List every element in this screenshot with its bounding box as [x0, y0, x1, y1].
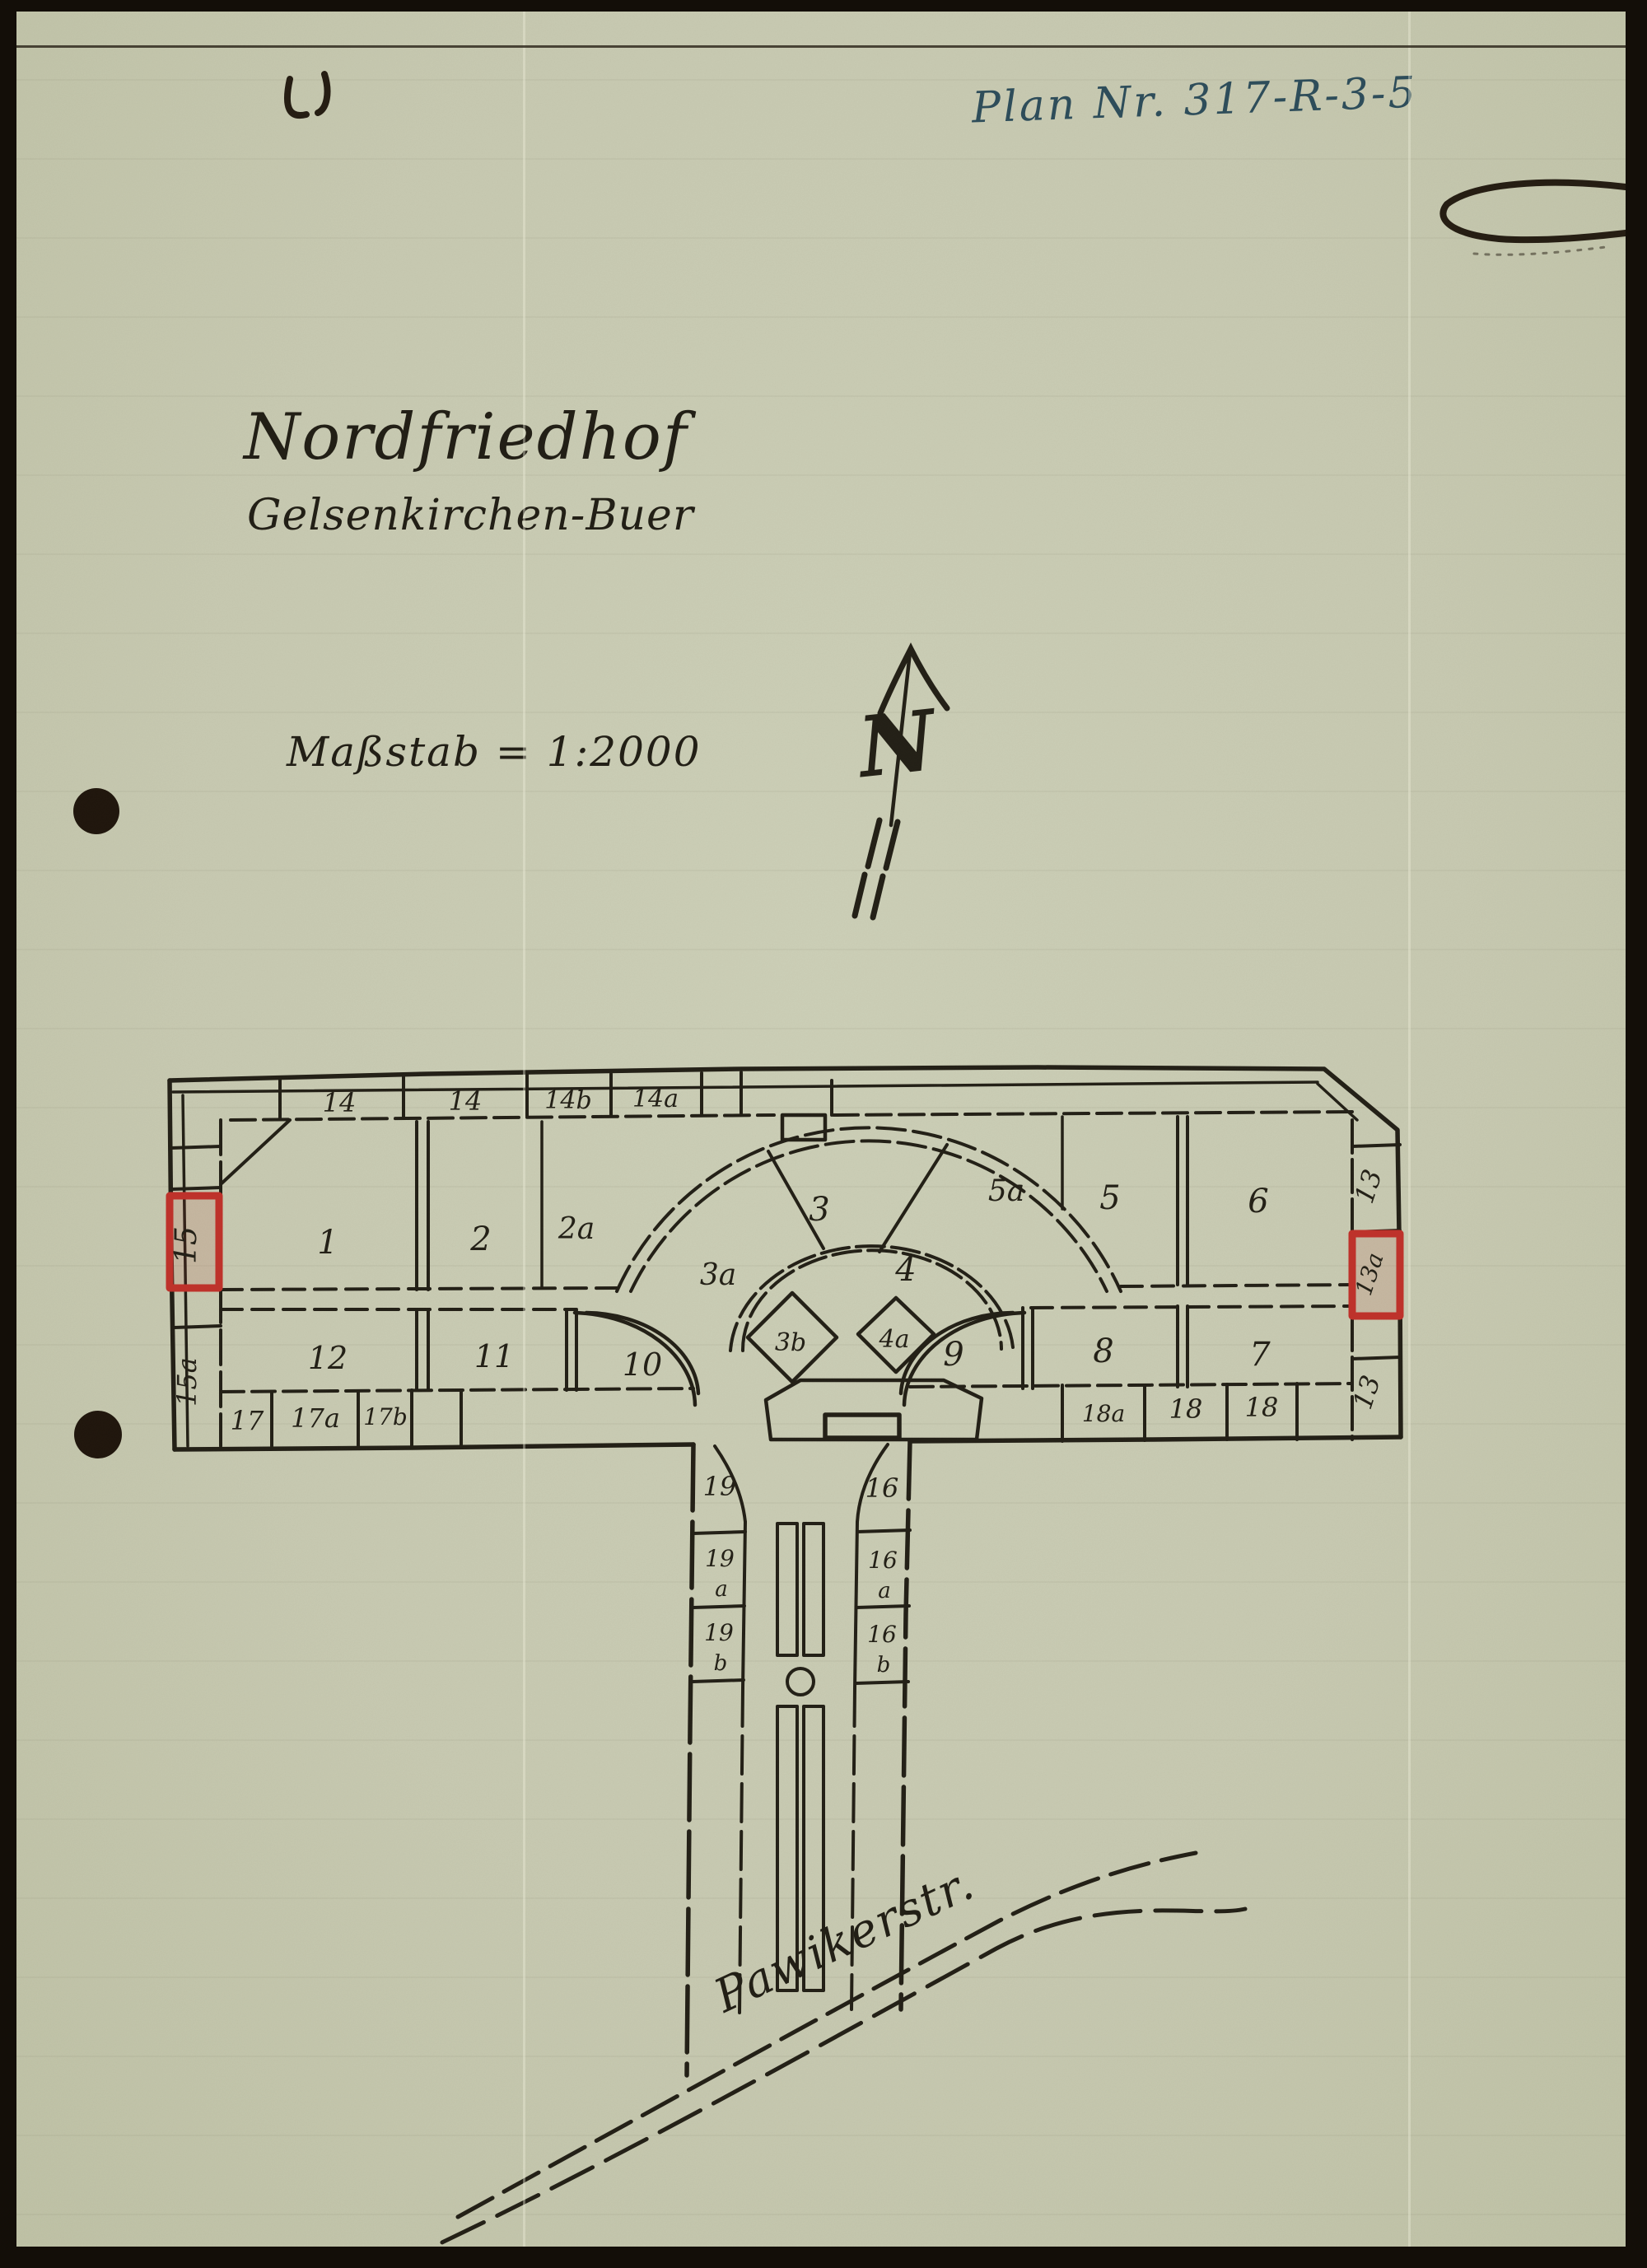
- scan-border-top: [0, 0, 1647, 12]
- top-ruled-line: [15, 45, 1647, 48]
- scanned-cemetery-plan-page: N: [0, 0, 1647, 2268]
- scan-border-left: [0, 0, 16, 2268]
- paper-crease: [523, 0, 525, 2268]
- page-title: Nordfriedhof: [244, 400, 688, 474]
- scale-label: Maßstab = 1:2000: [287, 728, 702, 776]
- page-subtitle: Gelsenkirchen-Buer: [247, 491, 694, 540]
- scan-border-right: [1626, 0, 1647, 2268]
- paper-crease: [1408, 0, 1411, 2268]
- scan-border-bottom: [0, 2247, 1647, 2268]
